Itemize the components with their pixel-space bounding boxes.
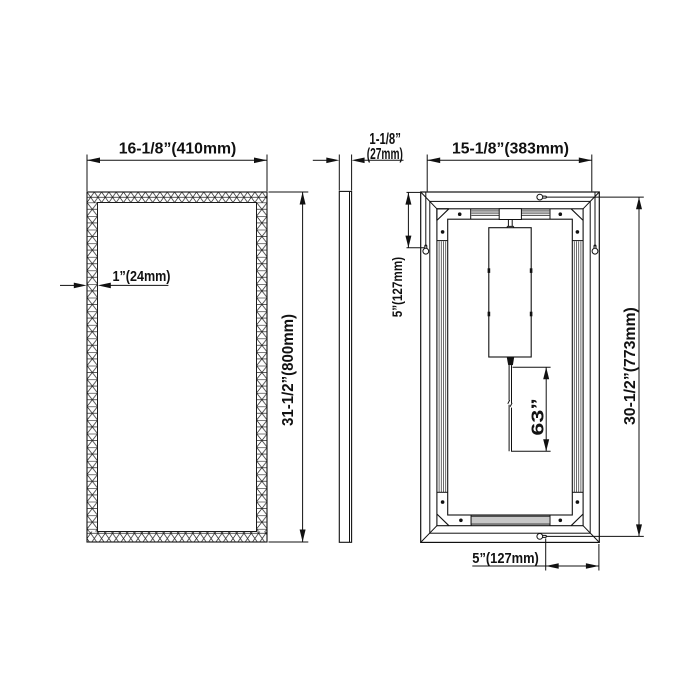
- svg-text:1”(24mm): 1”(24mm): [113, 269, 171, 285]
- svg-text:15-1/8”(383mm): 15-1/8”(383mm): [452, 140, 569, 157]
- svg-text:31-1/2”(800mm): 31-1/2”(800mm): [280, 314, 297, 426]
- svg-text:63”: 63”: [528, 398, 548, 436]
- svg-text:(27mm): (27mm): [367, 146, 403, 163]
- svg-text:5”(127mm): 5”(127mm): [389, 257, 405, 317]
- svg-text:5”(127mm): 5”(127mm): [472, 550, 539, 567]
- svg-text:16-1/8”(410mm): 16-1/8”(410mm): [119, 140, 237, 157]
- svg-text:30-1/2”(773mm): 30-1/2”(773mm): [622, 307, 639, 425]
